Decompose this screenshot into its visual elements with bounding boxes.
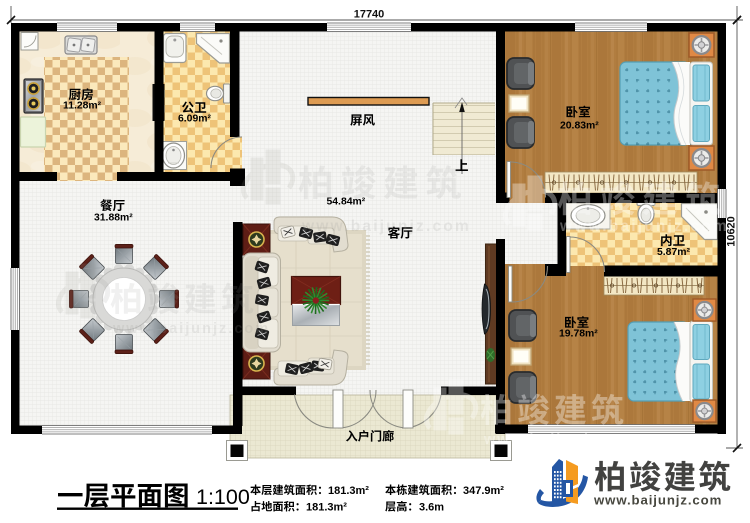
- svg-text:11.28m²: 11.28m²: [63, 101, 102, 112]
- svg-text:181.3m²: 181.3m²: [306, 502, 347, 514]
- svg-text:www.baijunjz.com: www.baijunjz.com: [483, 432, 641, 448]
- svg-text:www.baijunjz.com: www.baijunjz.com: [301, 218, 471, 235]
- svg-text:347.9m²: 347.9m²: [463, 485, 504, 497]
- svg-text:3.6m: 3.6m: [419, 502, 444, 514]
- svg-text:181.3m²: 181.3m²: [328, 485, 369, 497]
- svg-text:31.88m²: 31.88m²: [94, 213, 133, 224]
- svg-text:20.83m²: 20.83m²: [560, 121, 599, 132]
- svg-text:www.baijunjz.com: www.baijunjz.com: [559, 218, 729, 235]
- svg-text:17740: 17740: [354, 9, 385, 21]
- svg-text:1:100: 1:100: [196, 485, 250, 509]
- svg-text:10620: 10620: [726, 216, 738, 247]
- svg-text:54.84m²: 54.84m²: [327, 197, 366, 208]
- svg-text:www.baijunjz.com: www.baijunjz.com: [593, 493, 722, 508]
- svg-text:6.09m²: 6.09m²: [178, 114, 211, 125]
- svg-text:5.87m²: 5.87m²: [657, 247, 690, 258]
- svg-text:19.78m²: 19.78m²: [559, 329, 598, 340]
- svg-text:www.baijunjz.com: www.baijunjz.com: [112, 321, 270, 337]
